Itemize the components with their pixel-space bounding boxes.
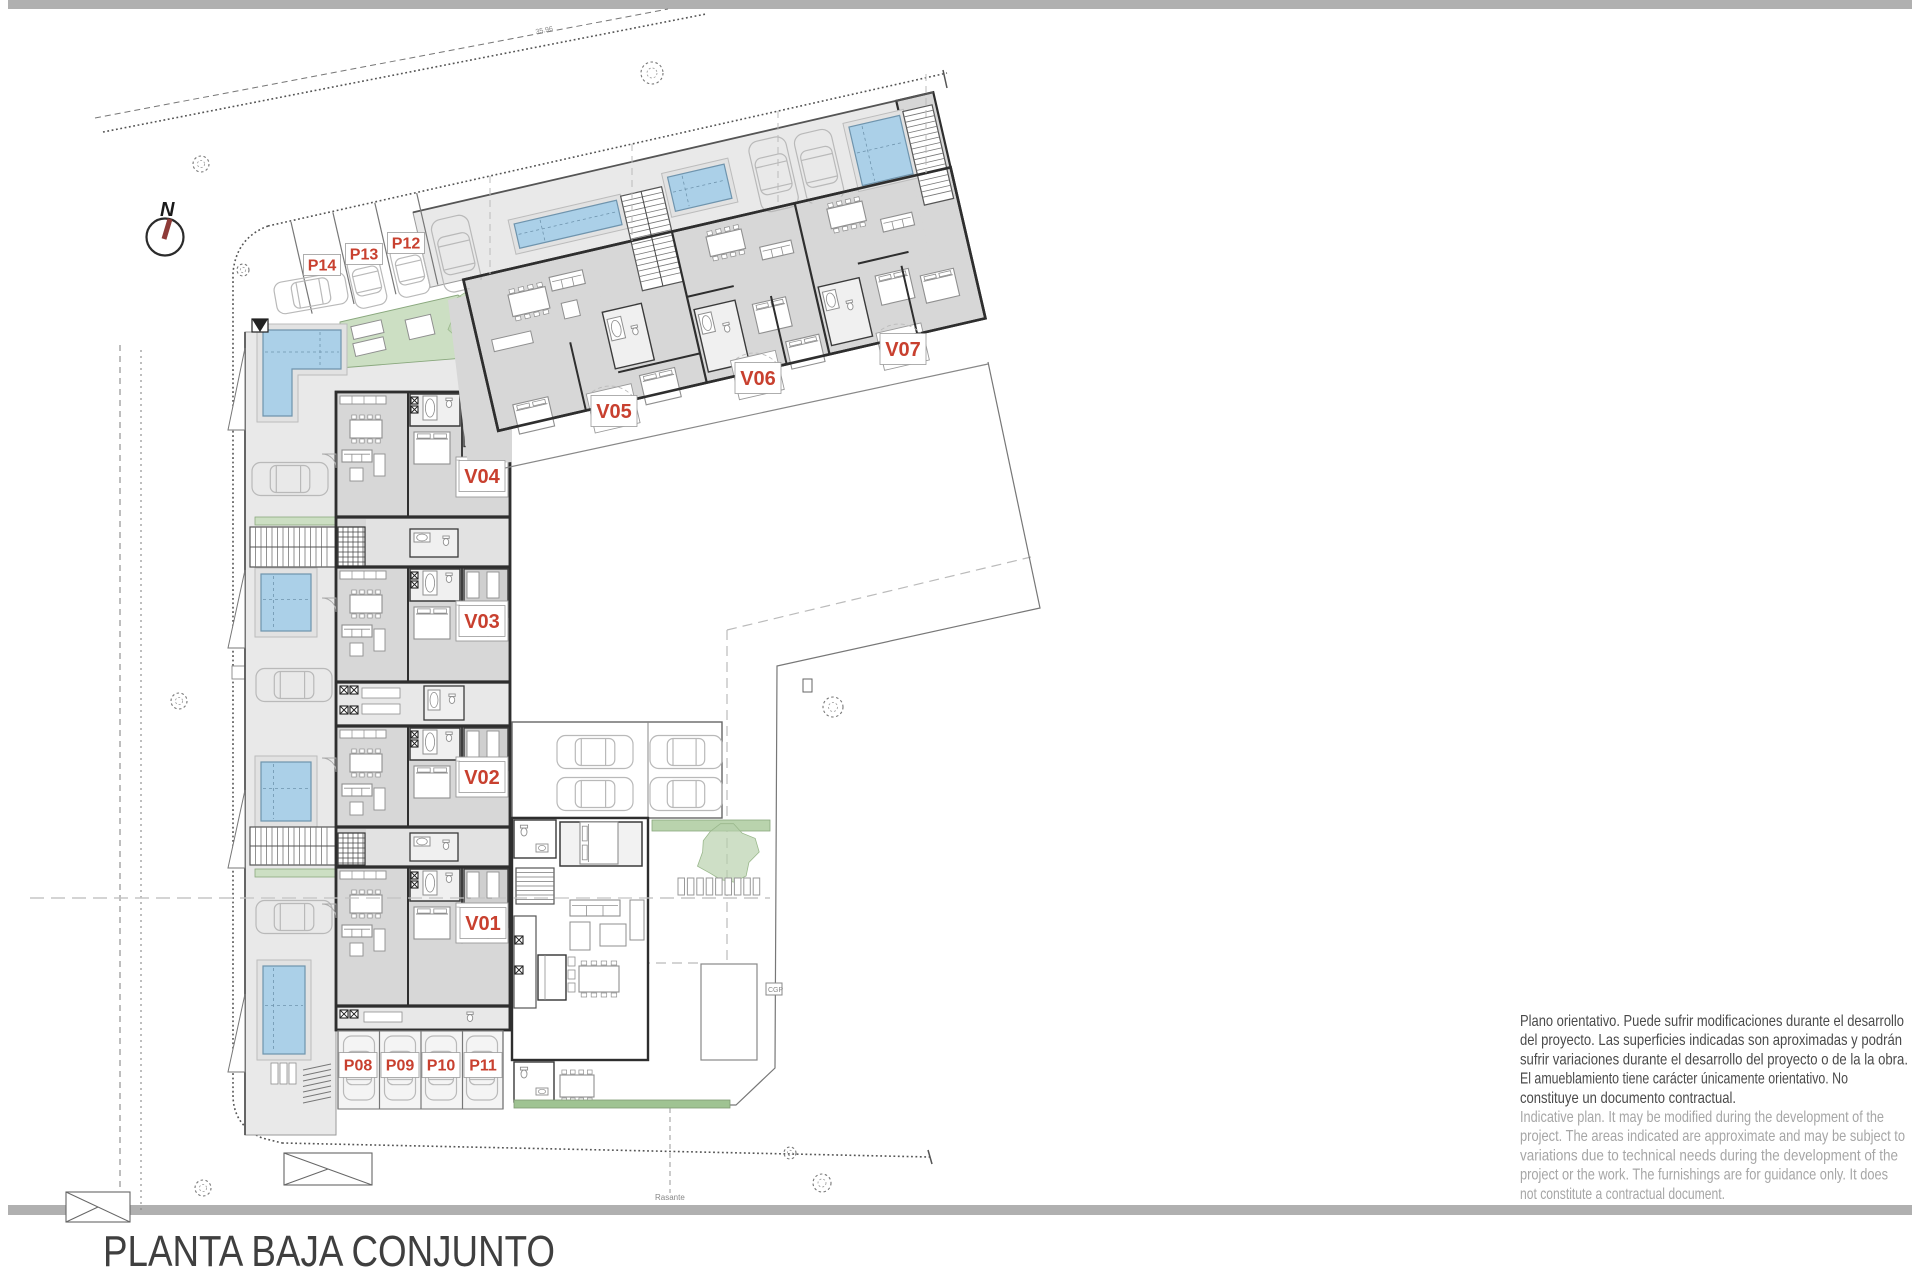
svg-text:PLANTA BAJA CONJUNTO: PLANTA BAJA CONJUNTO [103,1227,555,1276]
svg-text:V04: V04 [464,466,500,488]
svg-text:project or the work. The furni: project or the work. The furnishings are… [1520,1167,1888,1184]
svg-text:Indicative plan. It may be mod: Indicative plan. It may be modified duri… [1520,1109,1884,1126]
svg-text:V02: V02 [464,767,500,789]
svg-text:P14: P14 [308,257,337,274]
svg-text:P11: P11 [469,1057,497,1074]
svg-text:P12: P12 [392,235,421,252]
svg-text:V05: V05 [596,401,632,423]
svg-text:constituye un documento contra: constituye un documento contractual. [1520,1090,1736,1107]
svg-text:not constitute a contractual d: not constitute a contractual document. [1520,1186,1725,1203]
svg-text:project. The areas indicated a: project. The areas indicated are approxi… [1520,1128,1905,1145]
svg-text:V03: V03 [464,611,500,633]
svg-text:Rasante: Rasante [655,1193,685,1202]
svg-text:del proyecto. Las superficies: del proyecto. Las superficies indicadas … [1520,1032,1902,1049]
svg-text:P13: P13 [350,246,379,263]
svg-text:El amueblamiento tiene carácte: El amueblamiento tiene carácter únicamen… [1520,1071,1848,1088]
svg-text:CGP: CGP [768,987,784,994]
svg-text:Plano orientativo. Puede sufri: Plano orientativo. Puede sufrir modifica… [1520,1013,1904,1030]
svg-text:variations due to technical ne: variations due to technical needs during… [1520,1147,1898,1164]
svg-text:N: N [160,199,175,221]
svg-text:P10: P10 [427,1057,456,1074]
svg-text:P09: P09 [386,1057,415,1074]
svg-text:sufrir variaciones durante el: sufrir variaciones durante el desarrollo… [1520,1051,1908,1068]
svg-text:V07: V07 [885,339,921,361]
svg-text:V06: V06 [740,368,776,390]
svg-text:P08: P08 [344,1057,373,1074]
svg-text:V01: V01 [465,913,501,935]
